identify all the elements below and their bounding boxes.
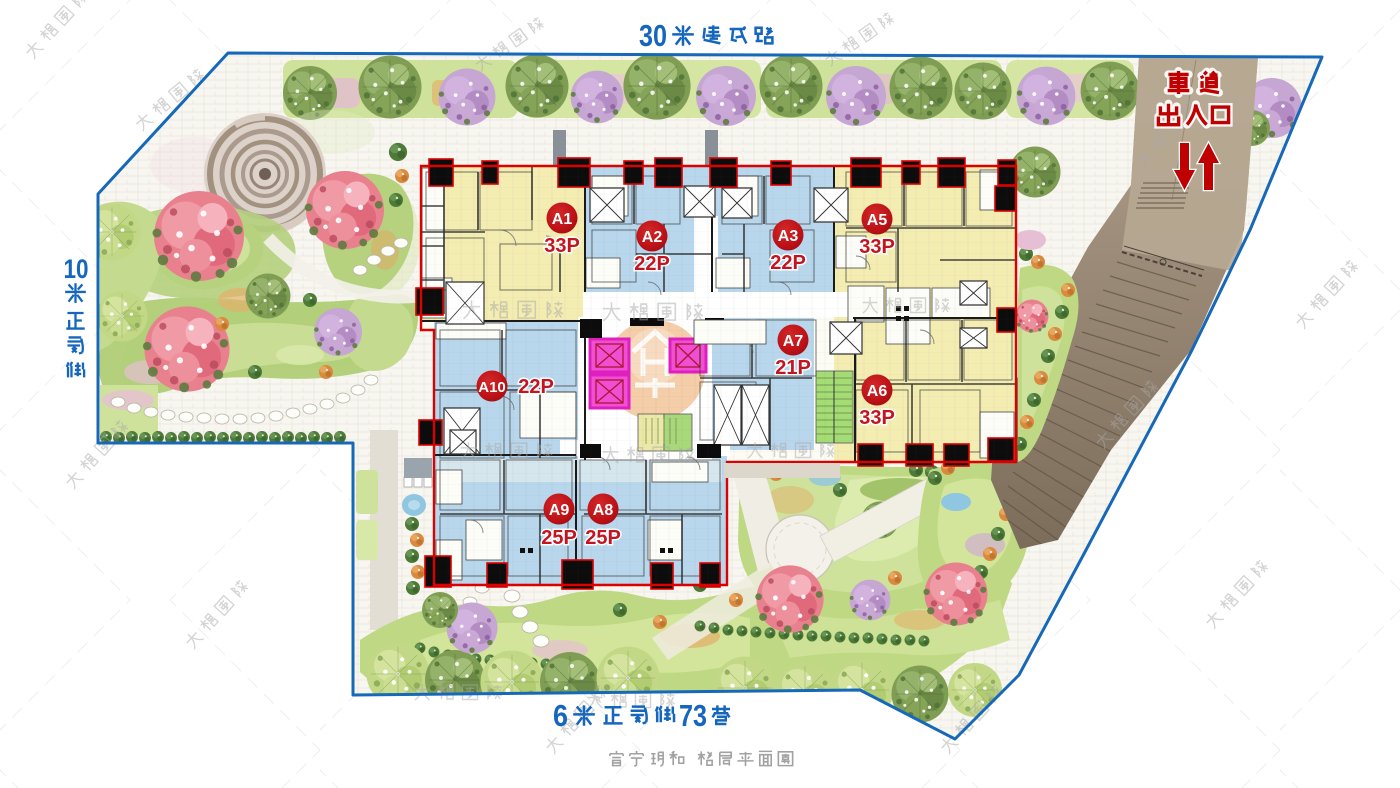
svg-text:73: 73 [679, 698, 707, 733]
svg-text:A1: A1 [552, 211, 573, 228]
svg-text:21P: 21P [775, 357, 811, 379]
svg-text:A5: A5 [867, 212, 888, 229]
svg-text:33P: 33P [544, 235, 580, 257]
svg-text:A3: A3 [778, 228, 799, 245]
svg-text:A2: A2 [642, 229, 663, 246]
svg-text:A9: A9 [549, 502, 570, 519]
svg-text:10: 10 [64, 254, 89, 284]
svg-text:A7: A7 [783, 333, 804, 350]
svg-text:30: 30 [639, 18, 667, 53]
svg-text:A8: A8 [593, 502, 614, 519]
svg-text:A6: A6 [867, 383, 888, 400]
svg-text:A10: A10 [478, 379, 506, 396]
svg-text:6: 6 [553, 698, 568, 733]
svg-text:33P: 33P [859, 236, 895, 258]
svg-text:22P: 22P [770, 252, 806, 274]
svg-text:33P: 33P [859, 407, 895, 429]
svg-text:25P: 25P [585, 527, 621, 549]
svg-text:25P: 25P [541, 527, 577, 549]
svg-text:22P: 22P [634, 253, 670, 275]
svg-text:22P: 22P [518, 376, 554, 398]
